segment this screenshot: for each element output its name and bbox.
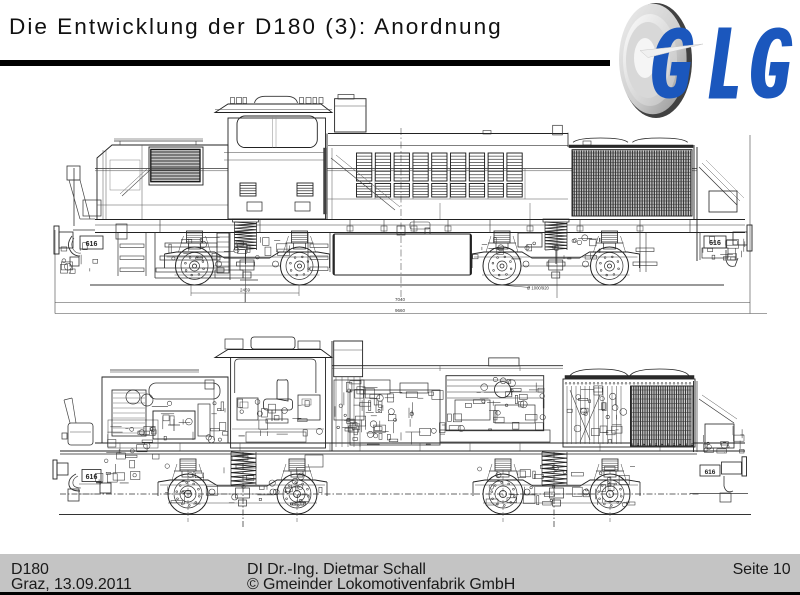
svg-text:616: 616 xyxy=(709,240,721,247)
svg-text:616: 616 xyxy=(705,469,716,476)
svg-text:Ø 1000/920: Ø 1000/920 xyxy=(527,286,550,291)
svg-text:9660: 9660 xyxy=(395,308,406,313)
svg-text:7040: 7040 xyxy=(395,297,406,302)
